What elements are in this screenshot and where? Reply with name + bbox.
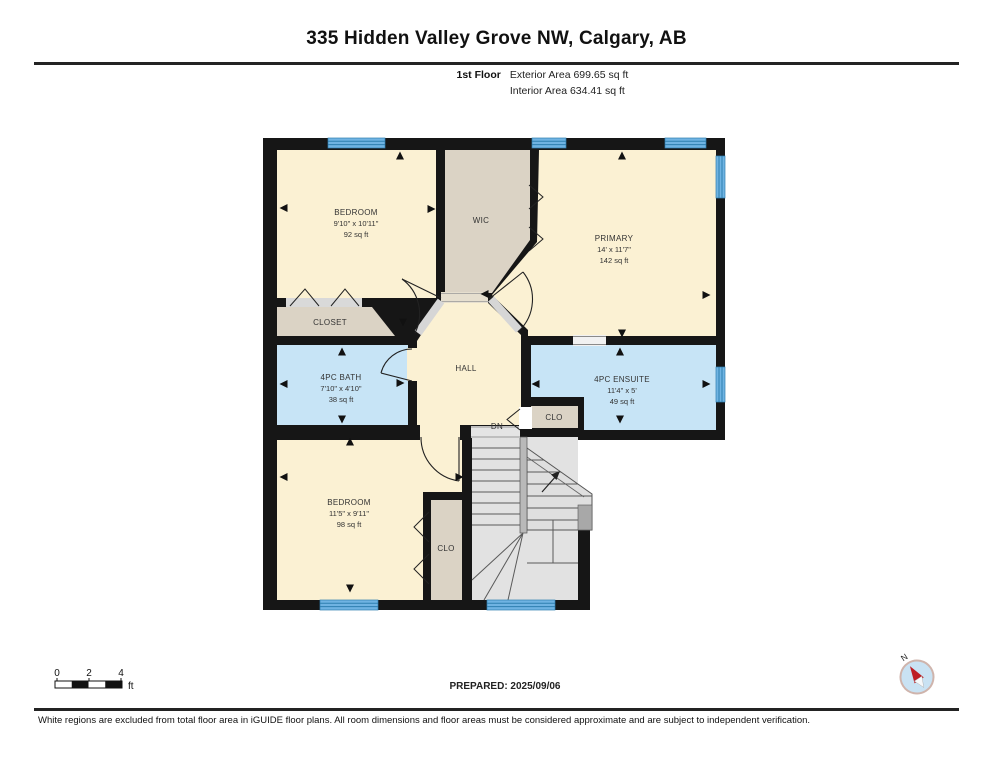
window bbox=[532, 138, 566, 148]
room-label: CLO bbox=[545, 413, 562, 422]
window bbox=[487, 600, 555, 610]
compass-north-label: N bbox=[899, 651, 910, 663]
stairs-dn-label: DN bbox=[491, 422, 503, 431]
window bbox=[665, 138, 706, 148]
room-label: PRIMARY bbox=[595, 234, 634, 243]
room-label: 4PC ENSUITE bbox=[594, 375, 650, 384]
stair-railing bbox=[520, 437, 527, 533]
window bbox=[328, 138, 385, 148]
room-dims: 7'10" x 4'10" bbox=[320, 384, 361, 393]
room-area: 142 sq ft bbox=[600, 256, 630, 265]
room-label: BEDROOM bbox=[334, 208, 377, 217]
bedroom-2-door-opening bbox=[420, 425, 460, 441]
scale-unit: ft bbox=[128, 681, 134, 692]
clo-upper-door-opening bbox=[519, 407, 532, 429]
scale-bar-seg bbox=[105, 681, 122, 688]
scale-bar: 0 2 4 ft bbox=[54, 668, 134, 692]
disclaimer-text: White regions are excluded from total fl… bbox=[38, 715, 973, 726]
scale-tick-0: 0 bbox=[54, 668, 60, 679]
room-area: 49 sq ft bbox=[610, 397, 636, 406]
window bbox=[716, 156, 725, 198]
room-label: CLOSET bbox=[313, 318, 347, 327]
scale-tick-2: 2 bbox=[86, 668, 92, 679]
stair-post bbox=[578, 505, 592, 530]
room-dims: 11'5" x 9'11" bbox=[329, 509, 369, 518]
scale-bar-seg bbox=[72, 681, 89, 688]
bath-door-opening bbox=[407, 348, 418, 381]
room-dims: 14' x 11'7" bbox=[597, 245, 631, 254]
room-area: 98 sq ft bbox=[337, 520, 363, 529]
room-label: 4PC BATH bbox=[321, 373, 362, 382]
room-label: BEDROOM bbox=[327, 498, 370, 507]
room-area: 92 sq ft bbox=[344, 230, 370, 239]
room-label: CLO bbox=[437, 544, 454, 553]
closet-opening bbox=[286, 298, 362, 307]
room-label: WIC bbox=[473, 216, 489, 225]
scale-tick-4: 4 bbox=[118, 668, 124, 679]
floor-plan-page: 335 Hidden Valley Grove NW, Calgary, AB … bbox=[0, 0, 993, 768]
room-dims: 11'4" x 5' bbox=[607, 386, 637, 395]
floor-plan-svg: BEDROOM 9'10" x 10'11" 92 sq ft WIC PRIM… bbox=[0, 0, 993, 768]
room-area: 38 sq ft bbox=[329, 395, 355, 404]
room-dims: 9'10" x 10'11" bbox=[334, 219, 379, 228]
prepared-date: PREPARED: 2025/09/06 bbox=[450, 681, 561, 692]
window bbox=[320, 600, 378, 610]
footer-divider bbox=[34, 708, 959, 711]
compass-icon: N bbox=[888, 644, 940, 700]
room-label: HALL bbox=[455, 364, 476, 373]
window bbox=[716, 367, 725, 402]
